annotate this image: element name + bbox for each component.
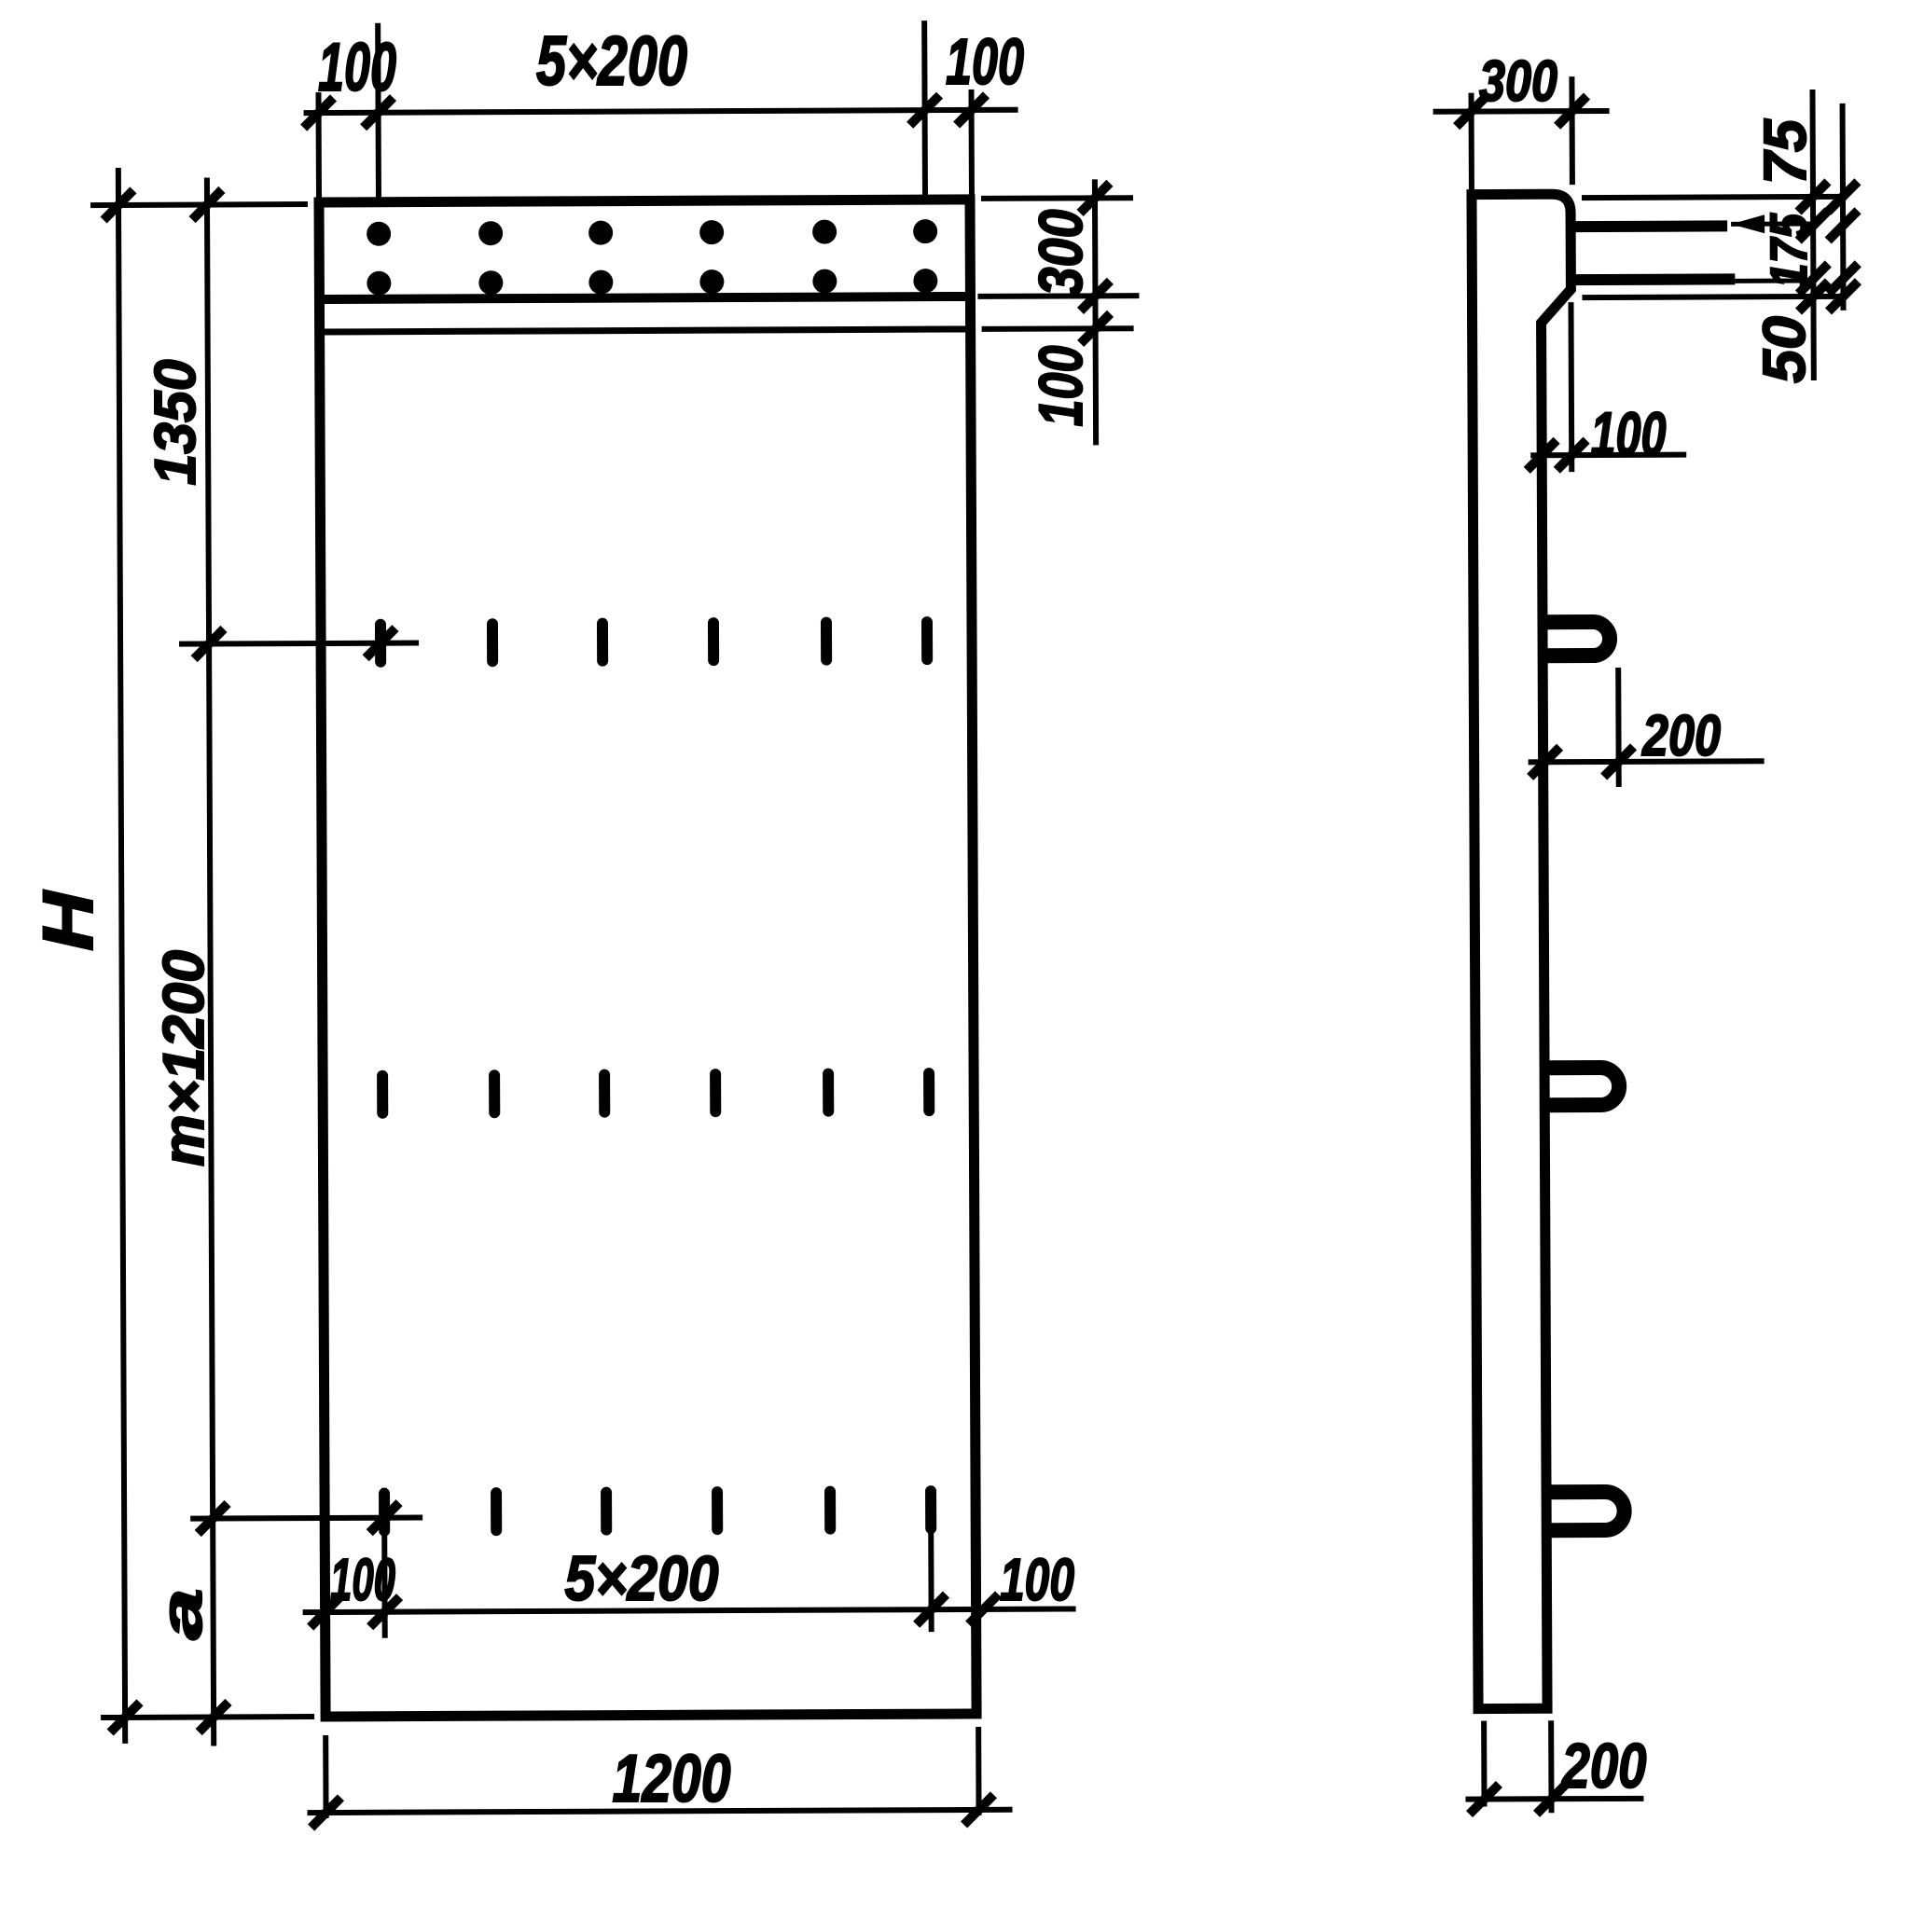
svg-text:100: 100 <box>1591 399 1667 468</box>
svg-text:a: a <box>150 1589 215 1640</box>
svg-text:100: 100 <box>330 1546 395 1613</box>
svg-text:100: 100 <box>946 25 1024 98</box>
svg-text:100: 100 <box>318 30 396 105</box>
svg-text:1350: 1350 <box>144 360 208 486</box>
svg-text:100: 100 <box>1000 1546 1074 1613</box>
svg-text:5×200: 5×200 <box>565 1543 719 1614</box>
svg-text:m×1200: m×1200 <box>152 950 216 1166</box>
svg-text:100: 100 <box>1026 345 1095 426</box>
svg-text:200: 200 <box>1560 1731 1647 1801</box>
svg-text:300: 300 <box>1479 49 1557 114</box>
svg-text:50: 50 <box>1751 316 1818 383</box>
svg-text:H: H <box>29 890 108 951</box>
svg-text:175: 175 <box>1759 213 1818 288</box>
svg-text:75: 75 <box>1751 118 1819 185</box>
svg-text:5×200: 5×200 <box>536 21 687 100</box>
svg-text:1200: 1200 <box>613 1742 731 1816</box>
svg-text:200: 200 <box>1641 704 1721 768</box>
svg-text:300: 300 <box>1026 209 1095 296</box>
